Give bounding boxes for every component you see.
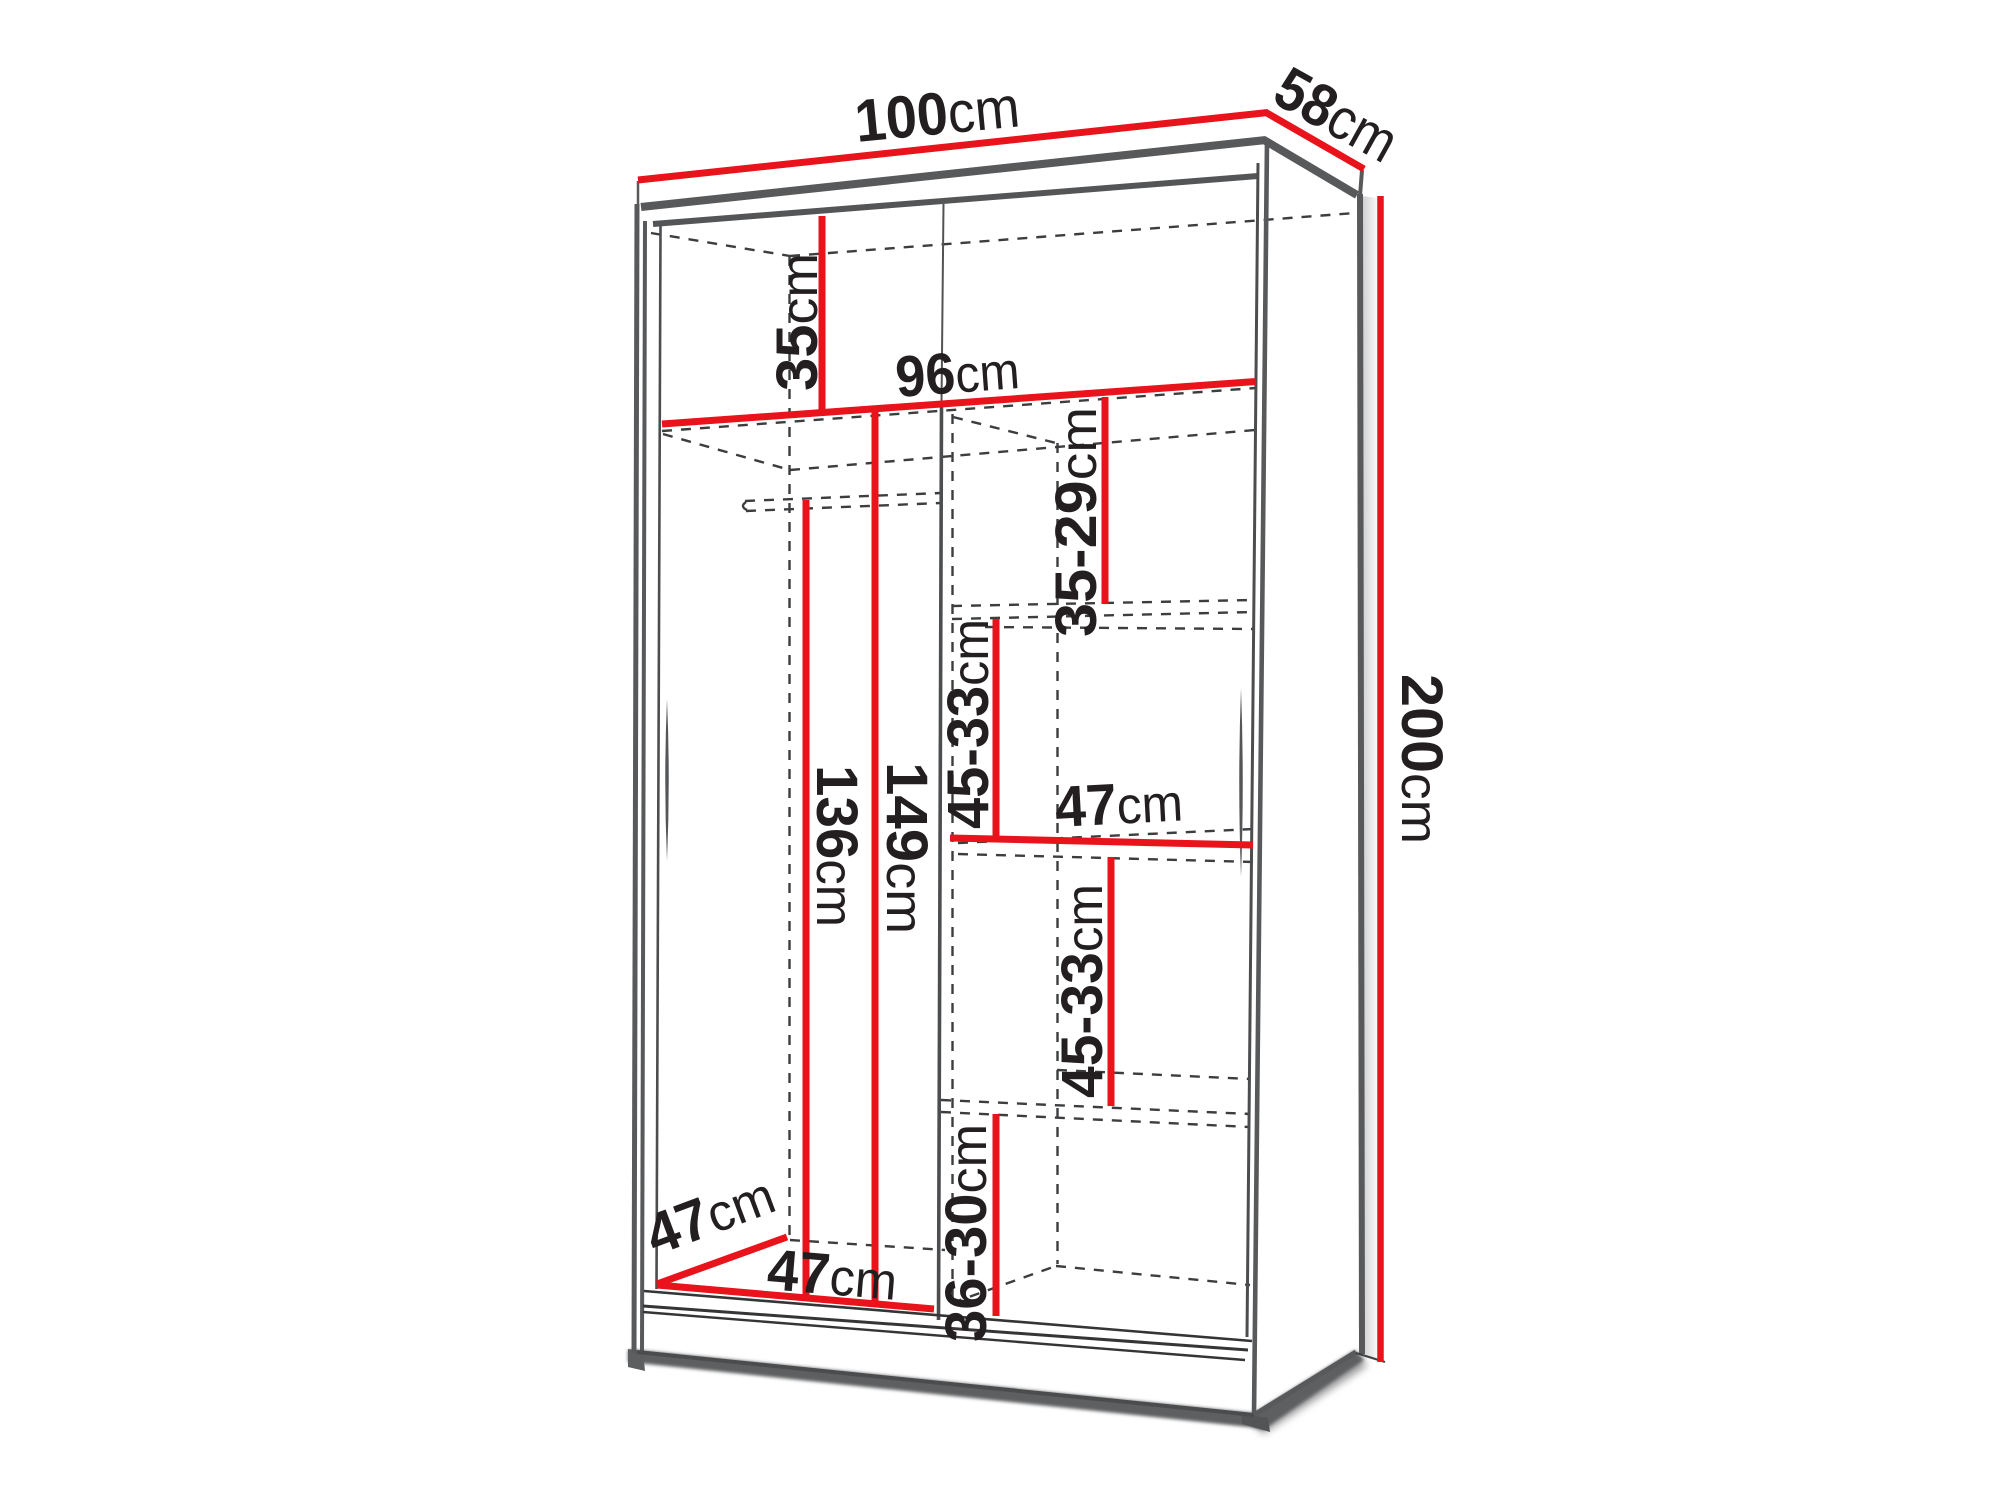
- svg-text:200cm: 200cm: [1389, 674, 1454, 844]
- svg-text:35-29cm: 35-29cm: [1044, 407, 1109, 637]
- svg-text:47cm: 47cm: [765, 1237, 900, 1313]
- svg-text:45-33cm: 45-33cm: [1050, 884, 1115, 1098]
- svg-text:136cm: 136cm: [804, 765, 869, 927]
- svg-text:96cm: 96cm: [893, 336, 1021, 410]
- svg-text:47cm: 47cm: [1053, 768, 1184, 840]
- svg-text:36-30cm: 36-30cm: [934, 1124, 999, 1342]
- svg-text:45-33cm: 45-33cm: [936, 619, 1001, 829]
- svg-text:149cm: 149cm: [874, 762, 939, 934]
- svg-text:35cm: 35cm: [765, 253, 830, 391]
- svg-text:47cm: 47cm: [637, 1161, 783, 1268]
